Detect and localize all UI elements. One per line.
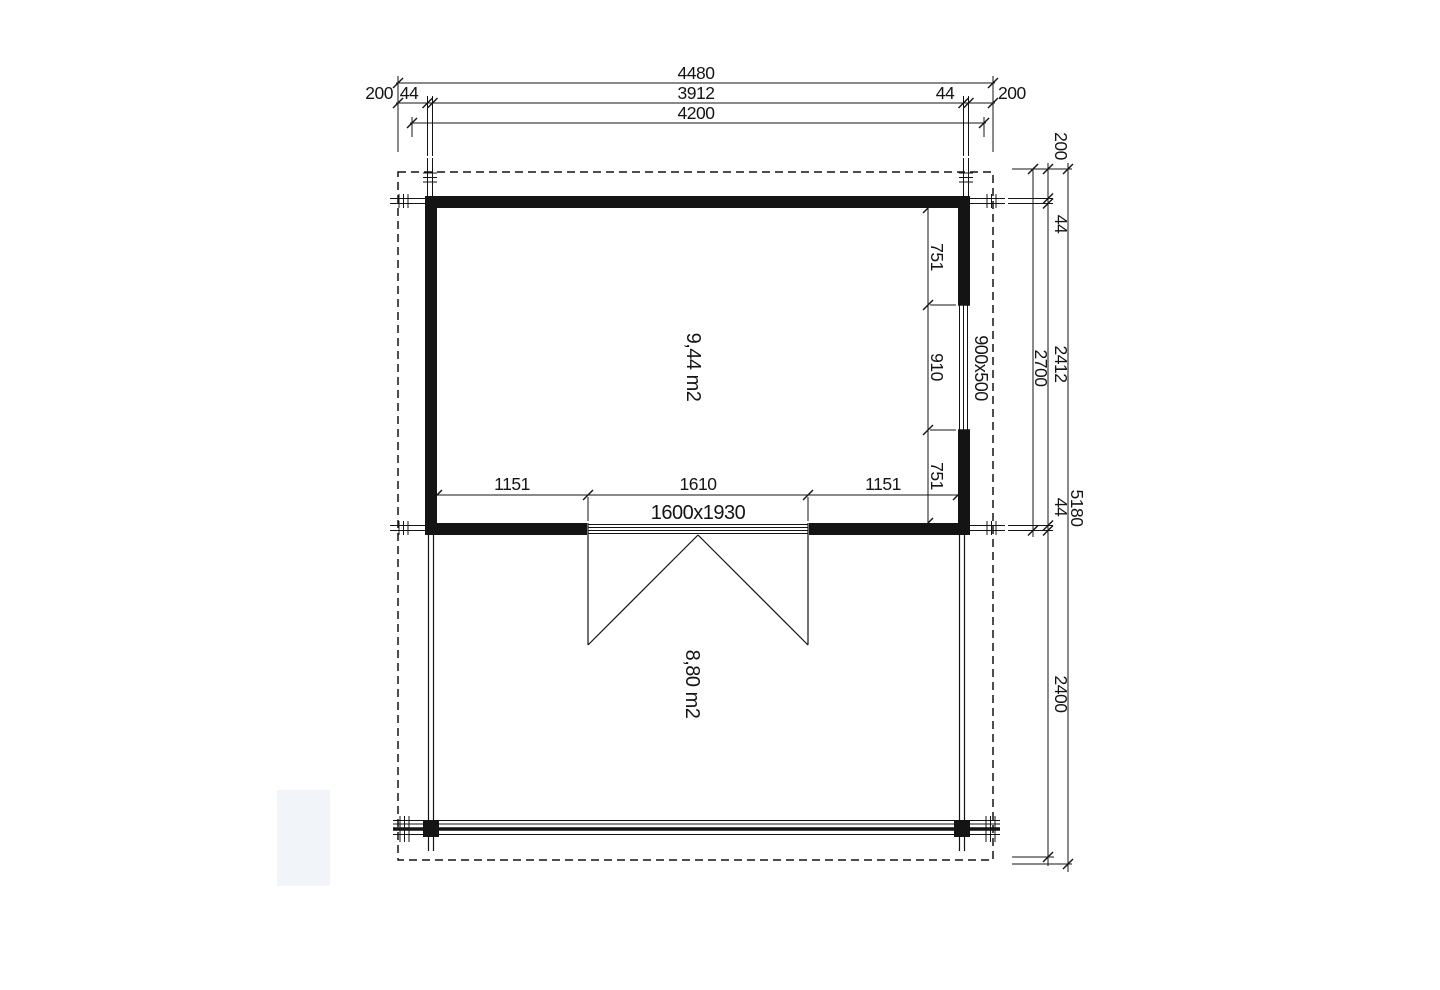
window-symbol xyxy=(957,305,972,431)
dim-interior-depth-label: 2412 xyxy=(1051,346,1071,383)
dim-overall-width-label: 4480 xyxy=(678,63,716,83)
cabin-area-label: 9,44 m2 xyxy=(682,333,704,402)
dim-door-width-label: 1610 xyxy=(680,474,718,494)
terrace-area-label: 8,80 m2 xyxy=(681,650,703,719)
dim-overhang-top-label: 200 xyxy=(1051,132,1071,160)
dim-overall-depth-label: 5180 xyxy=(1067,490,1087,528)
dim-col-right: 200 44 2412 2700 44 5180 2400 xyxy=(1008,132,1087,872)
dim-interior-window-wall: 751 910 751 xyxy=(923,203,956,528)
dim-overhang-left-label: 200 xyxy=(365,83,393,103)
plan-canvas: 4480 200 44 3912 44 200 4200 200 44 241 xyxy=(0,0,1440,990)
dim-door-left-offset-label: 1151 xyxy=(494,474,530,494)
wall-left xyxy=(425,196,437,535)
watermark-rect xyxy=(277,790,330,886)
dim-interior-width-label: 3912 xyxy=(678,83,715,103)
dim-window-bottom-offset-label: 751 xyxy=(927,462,947,490)
double-door-swing xyxy=(588,535,808,645)
door-opening xyxy=(587,522,809,536)
dim-rows-top: 4480 200 44 3912 44 200 4200 xyxy=(365,63,1026,156)
dim-wall-top-label: 44 xyxy=(1051,215,1071,234)
window-size-label: 900x500 xyxy=(971,335,991,401)
plan-drawing: 4480 200 44 3912 44 200 4200 200 44 241 xyxy=(0,0,1440,990)
terrace-post-right xyxy=(954,821,970,837)
door-size-label: 1600x1930 xyxy=(651,502,746,524)
dim-window-width-label: 910 xyxy=(927,353,947,381)
dim-wall-left-label: 44 xyxy=(400,83,419,103)
dim-cabin-outer-depth-label: 2700 xyxy=(1031,350,1051,388)
dim-terrace-depth-label: 2400 xyxy=(1051,676,1071,714)
dim-window-top-offset-label: 751 xyxy=(927,243,947,271)
door-leaf-left xyxy=(588,535,698,645)
dim-door-right-offset-label: 1151 xyxy=(865,474,901,494)
dim-overhang-right-label: 200 xyxy=(998,83,1026,103)
dim-wall-right-label: 44 xyxy=(936,83,955,103)
door-leaf-right xyxy=(698,535,808,645)
dim-log-length-label: 4200 xyxy=(678,103,716,123)
terrace-post-left xyxy=(423,821,439,837)
wall-top xyxy=(425,196,970,208)
